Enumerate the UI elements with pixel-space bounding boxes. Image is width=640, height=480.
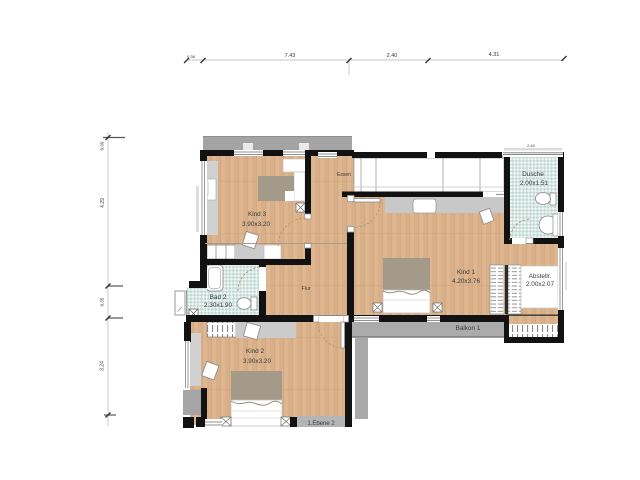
svg-text:Flur: Flur [302,286,311,292]
svg-text:1.Ebene 2: 1.Ebene 2 [307,421,335,427]
svg-text:Balkon 1: Balkon 1 [456,325,481,332]
svg-text:0.35: 0.35 [100,297,105,306]
svg-text:4.29: 4.29 [100,198,106,208]
svg-text:2.30x1.90: 2.30x1.90 [204,302,233,309]
svg-text:Essen: Essen [337,172,351,178]
svg-text:7.43: 7.43 [285,53,296,59]
svg-text:2.40: 2.40 [387,53,398,59]
svg-text:2.00x2.07: 2.00x2.07 [526,281,555,288]
svg-text:Kind 3: Kind 3 [248,211,267,218]
svg-text:Abstellr.: Abstellr. [529,273,552,280]
svg-text:3.24: 3.24 [100,361,106,371]
svg-text:Bad 2: Bad 2 [210,294,227,301]
svg-text:4.31: 4.31 [489,52,500,58]
svg-text:Kind 2: Kind 2 [246,348,265,355]
svg-text:Kind 1: Kind 1 [457,269,476,276]
svg-text:2.00x1.51: 2.00x1.51 [520,180,549,187]
svg-text:0.38: 0.38 [187,54,196,59]
svg-text:0.99: 0.99 [100,141,105,150]
svg-text:3.90x3.20: 3.90x3.20 [243,358,272,365]
svg-text:3.90x3.20: 3.90x3.20 [242,221,271,228]
svg-text:Dusche: Dusche [522,171,544,178]
svg-text:2.40: 2.40 [527,143,536,148]
svg-text:4.20x3.76: 4.20x3.76 [452,278,481,285]
